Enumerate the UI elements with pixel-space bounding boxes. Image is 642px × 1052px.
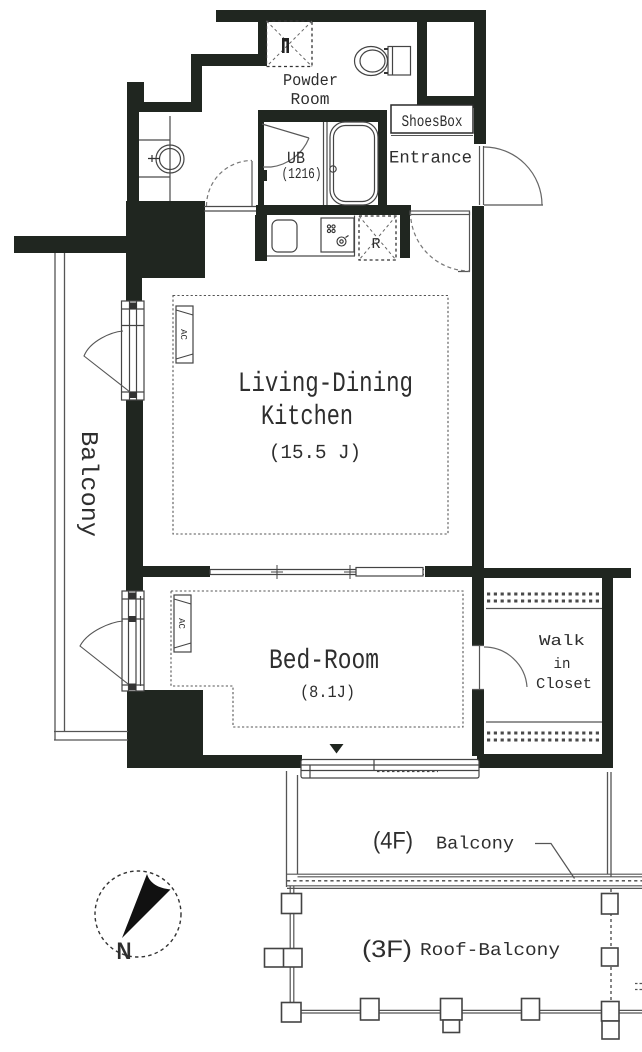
- svg-text:Balcony: Balcony: [436, 835, 514, 855]
- svg-text:Bed-Room: Bed-Room: [269, 646, 379, 677]
- svg-text:(1216): (1216): [282, 166, 322, 183]
- svg-text:(4F): (4F): [373, 828, 413, 855]
- svg-text:N: N: [117, 938, 132, 965]
- svg-text:Entrance: Entrance: [389, 149, 472, 169]
- svg-text:Roof-Balcony: Roof-Balcony: [420, 941, 560, 961]
- svg-text:Room: Room: [291, 90, 330, 109]
- svg-text:ShoesBox: ShoesBox: [402, 113, 463, 131]
- svg-text:(3F): (3F): [362, 936, 412, 963]
- svg-text:Balcony: Balcony: [74, 431, 101, 537]
- svg-text:Powder: Powder: [283, 71, 338, 90]
- svg-text:Kitchen: Kitchen: [261, 402, 353, 433]
- svg-text:Closet: Closet: [536, 676, 592, 693]
- svg-text:R: R: [371, 236, 380, 253]
- svg-text:(8.1J): (8.1J): [300, 684, 355, 703]
- svg-text:AC: AC: [176, 618, 186, 629]
- svg-text:(15.5 J): (15.5 J): [269, 442, 361, 465]
- svg-text:Living-Dining: Living-Dining: [238, 369, 413, 400]
- svg-text:Walk: Walk: [539, 633, 585, 650]
- svg-text:in: in: [554, 656, 571, 673]
- svg-text:AC: AC: [178, 329, 188, 340]
